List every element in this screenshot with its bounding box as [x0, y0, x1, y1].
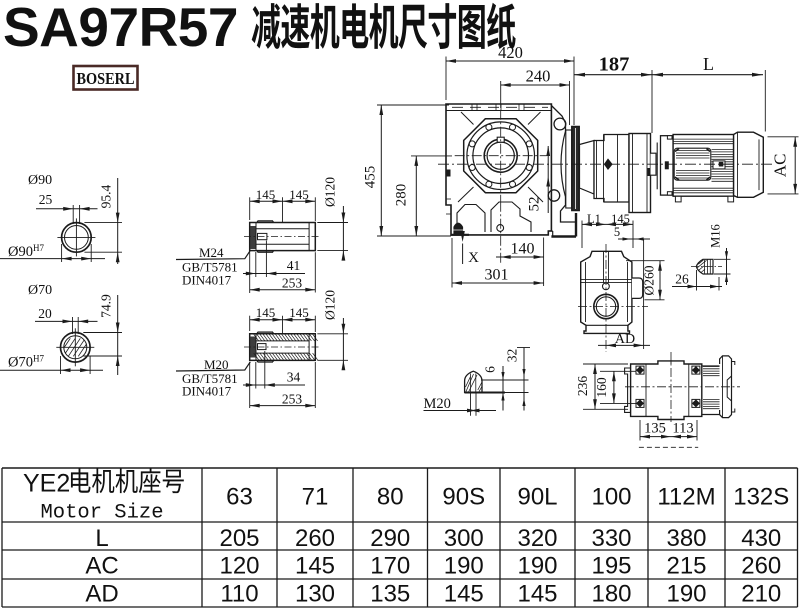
svg-text:253: 253 [282, 276, 303, 291]
svg-text:320: 320 [517, 525, 557, 552]
svg-text:210: 210 [741, 581, 781, 608]
svg-text:236: 236 [575, 376, 590, 397]
svg-text:205: 205 [219, 525, 259, 552]
svg-text:160: 160 [594, 377, 609, 398]
svg-text:195: 195 [591, 553, 631, 580]
svg-text:AC: AC [85, 553, 118, 580]
svg-text:DIN4017: DIN4017 [182, 384, 232, 399]
svg-text:120: 120 [219, 553, 259, 580]
svg-text:YE2: YE2 [23, 470, 70, 498]
svg-text:71: 71 [302, 484, 329, 511]
svg-text:180: 180 [591, 581, 631, 608]
svg-text:M20: M20 [424, 396, 451, 412]
svg-text:M16: M16 [709, 224, 723, 248]
svg-text:74.9: 74.9 [99, 294, 114, 318]
svg-text:M20: M20 [204, 357, 229, 372]
svg-text:135: 135 [370, 581, 410, 608]
svg-text:SA97R57: SA97R57 [3, 0, 238, 58]
svg-text:100: 100 [591, 484, 631, 511]
svg-text:190: 190 [444, 553, 484, 580]
svg-text:145: 145 [517, 581, 557, 608]
svg-text:Ø120: Ø120 [323, 290, 338, 320]
svg-text:26: 26 [675, 272, 689, 287]
svg-text:DIN4017: DIN4017 [182, 272, 232, 287]
svg-text:290: 290 [370, 525, 410, 552]
svg-text:260: 260 [295, 525, 335, 552]
svg-text:32: 32 [505, 349, 520, 363]
svg-text:145: 145 [256, 305, 276, 320]
svg-text:253: 253 [282, 392, 303, 407]
svg-text:215: 215 [666, 553, 706, 580]
svg-text:X: X [468, 250, 479, 266]
svg-text:20: 20 [38, 306, 52, 321]
svg-text:135: 135 [644, 421, 666, 437]
svg-text:260: 260 [741, 553, 781, 580]
svg-text:95.4: 95.4 [99, 184, 114, 208]
svg-text:145: 145 [444, 581, 484, 608]
svg-text:132S: 132S [733, 484, 789, 511]
svg-text:90S: 90S [442, 484, 485, 511]
svg-text:L: L [95, 525, 108, 552]
svg-text:34: 34 [287, 370, 301, 385]
svg-text:Motor Size: Motor Size [40, 502, 163, 525]
svg-text:420: 420 [498, 43, 523, 62]
svg-text:25: 25 [39, 192, 53, 207]
svg-text:L: L [703, 54, 714, 74]
svg-text:Ø120: Ø120 [323, 177, 338, 207]
svg-text:380: 380 [666, 525, 706, 552]
svg-text:145: 145 [289, 305, 309, 320]
svg-text:41: 41 [287, 258, 301, 273]
svg-text:Ø90: Ø90 [28, 173, 52, 188]
svg-text:240: 240 [526, 67, 551, 86]
svg-text:BOSERL: BOSERL [77, 69, 135, 88]
svg-text:140: 140 [511, 241, 535, 258]
svg-text:112M: 112M [657, 484, 715, 511]
svg-text:90L: 90L [517, 484, 557, 511]
svg-text:63: 63 [226, 484, 253, 511]
svg-text:130: 130 [295, 581, 335, 608]
svg-text:AD: AD [85, 581, 118, 608]
svg-text:187: 187 [599, 54, 630, 76]
svg-text:AC: AC [771, 153, 790, 177]
svg-text:170: 170 [370, 553, 410, 580]
svg-text:80: 80 [377, 484, 404, 511]
svg-text:110: 110 [220, 581, 258, 608]
svg-text:280: 280 [394, 184, 410, 207]
svg-text:M24: M24 [199, 245, 224, 260]
svg-text:190: 190 [517, 553, 557, 580]
svg-text:113: 113 [672, 421, 693, 437]
svg-text:330: 330 [591, 525, 631, 552]
svg-text:145: 145 [295, 553, 335, 580]
svg-text:Ø70: Ø70 [28, 283, 52, 298]
svg-text:52: 52 [527, 197, 543, 212]
svg-text:300: 300 [444, 525, 484, 552]
svg-text:190: 190 [666, 581, 706, 608]
svg-text:455: 455 [363, 166, 379, 189]
svg-text:6: 6 [483, 366, 498, 373]
svg-text:430: 430 [741, 525, 781, 552]
svg-text:5: 5 [614, 225, 620, 239]
svg-text:AD: AD [615, 332, 635, 347]
svg-text:301: 301 [485, 267, 509, 284]
